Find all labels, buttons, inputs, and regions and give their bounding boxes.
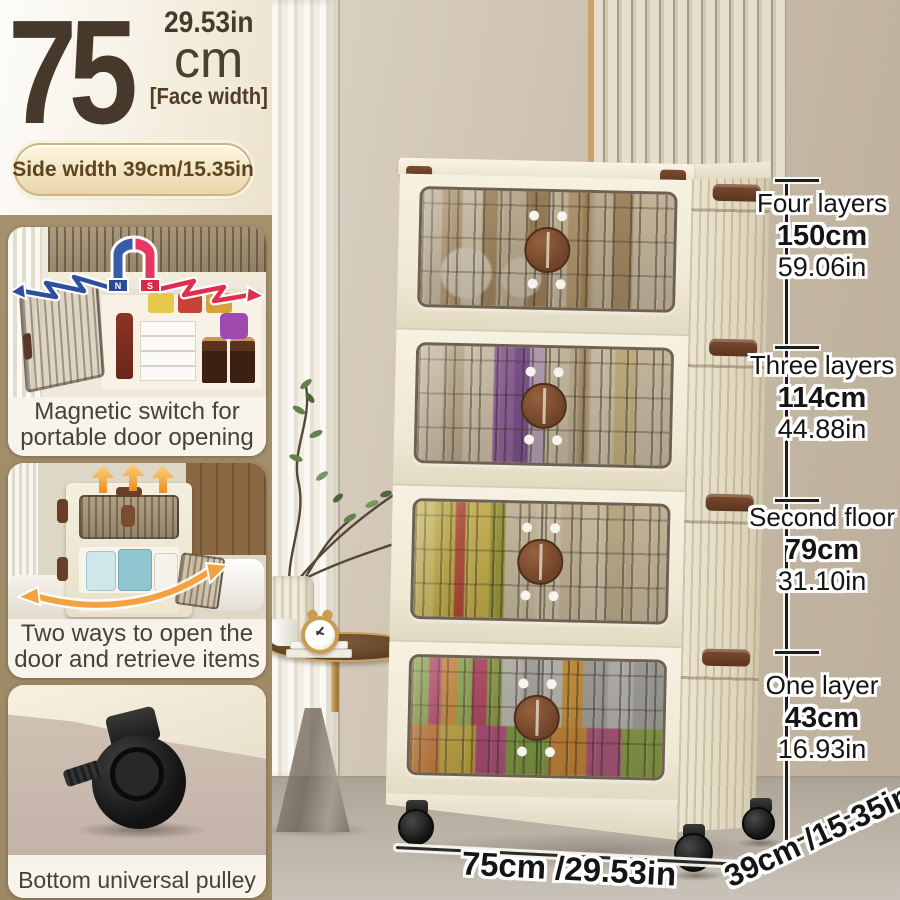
measurement-cm: 43cm (738, 703, 900, 734)
measure-tick (775, 651, 819, 654)
tier-window (413, 342, 674, 469)
svg-text:N: N (115, 281, 122, 291)
measure-tick (775, 346, 819, 349)
measurement-cm: 150cm (738, 221, 900, 252)
banner-header: 75 29.53in cm [Face width] Side width 39… (0, 0, 272, 215)
feature-caption: Two ways to open the door and retrieve i… (8, 619, 266, 678)
feature-card-magnetic-switch: N S Magnetic switch for portable door op… (8, 227, 266, 456)
magnet-dots (532, 712, 542, 722)
sidebar: 75 29.53in cm [Face width] Side width 39… (0, 0, 272, 900)
cabinet-tier-1 (397, 174, 692, 337)
storage-cabinet (383, 156, 770, 846)
measurement-label: Three layers (738, 352, 900, 380)
side-width-badge: Side width 39cm/15.35in (14, 143, 252, 196)
measurement-second-floor: Second floor 79cm 31.10in (738, 504, 900, 596)
measurement-inches: 59.06in (738, 253, 900, 282)
measurement-label: One layer (738, 672, 900, 700)
magnet-dots (542, 244, 552, 254)
magnet-icon: N S (8, 235, 266, 321)
feature-card-pulley: Bottom universal pulley (8, 685, 266, 898)
feature-photo (8, 685, 266, 855)
measurement-cm: 79cm (738, 535, 900, 566)
measurement-inches: 16.93in (738, 735, 900, 764)
face-width-unit: cm (174, 30, 243, 90)
svg-text:S: S (147, 281, 153, 291)
side-width-badge-text: Side width 39cm/15.35in (12, 158, 254, 182)
cabinet-tier-3 (389, 486, 684, 649)
measurement-cm: 114cm (738, 383, 900, 414)
feature-photo: N S (8, 227, 266, 405)
cabinet-tier-4 (386, 641, 681, 802)
feature-caption: Magnetic switch for portable door openin… (8, 397, 266, 456)
feature-photo (8, 463, 266, 627)
feature-card-two-ways: Two ways to open the door and retrieve i… (8, 463, 266, 678)
measurement-inches: 31.10in (738, 567, 900, 596)
measure-tick (775, 179, 819, 182)
side-handle (702, 649, 750, 667)
feature-caption: Bottom universal pulley (8, 866, 266, 898)
alarm-clock (301, 616, 339, 654)
slat-wall-panel (588, 0, 786, 180)
magnet-dots (535, 556, 545, 566)
measurement-three-layers: Three layers 114cm 44.88in (738, 352, 900, 444)
measurement-label: Second floor (738, 504, 900, 532)
face-width-value: 75 (8, 8, 129, 138)
tier-window (410, 498, 671, 625)
cabinet-tier-2 (393, 330, 688, 493)
measurement-label: Four layers (738, 190, 900, 218)
swoosh-arrow-icon (8, 463, 266, 627)
measurement-one-layer: One layer 43cm 16.93in (738, 672, 900, 764)
tier-window (406, 654, 667, 781)
magnet-dots (539, 400, 549, 410)
measurement-inches: 44.88in (738, 415, 900, 444)
measurement-four-layers: Four layers 150cm 59.06in (738, 190, 900, 282)
product-infographic: Four layers 150cm 59.06in Three layers 1… (0, 0, 900, 900)
cabinet-front (386, 174, 692, 802)
tier-window (417, 186, 678, 313)
side-table-stem (331, 656, 339, 712)
face-width-label: [Face width] (148, 83, 270, 110)
